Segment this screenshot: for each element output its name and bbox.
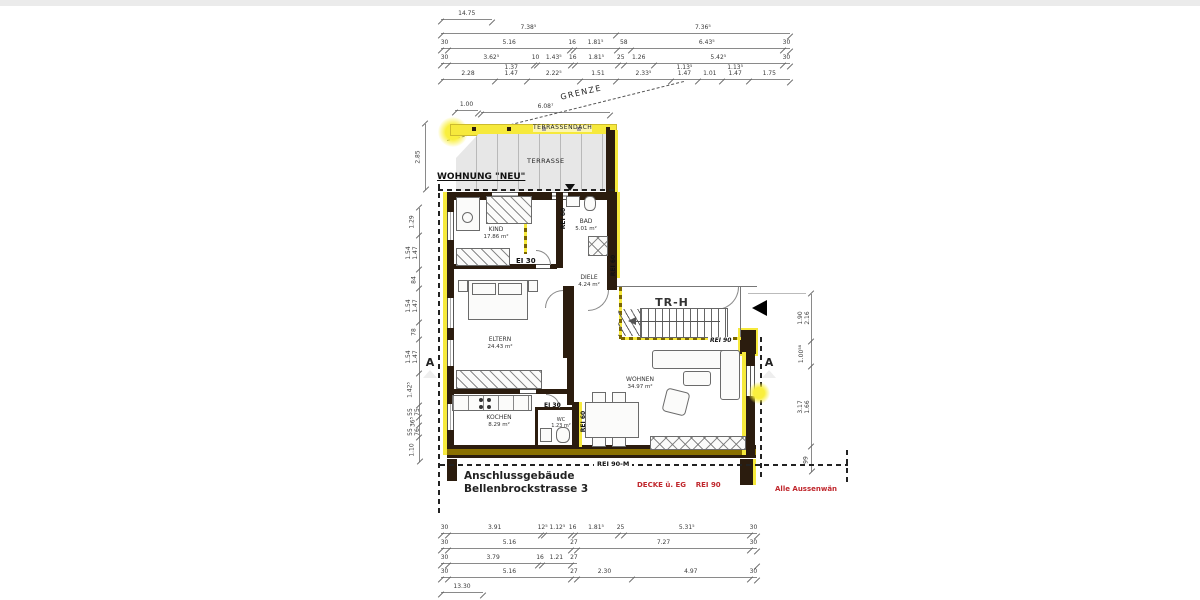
terrace-post <box>507 127 511 131</box>
dim-segment: 1.00⁵⁸ <box>796 342 812 367</box>
lower-wall-stub-left <box>447 459 457 481</box>
dim-segment: 1.10 <box>404 438 420 462</box>
window-eltern-2 <box>447 340 454 366</box>
dim-segment: 1.81⁵ <box>575 52 618 64</box>
kitchen-counter <box>452 395 532 411</box>
window-kind <box>447 212 454 240</box>
grenze-label: GRENZE <box>560 83 603 101</box>
section-marker-left: A <box>423 356 437 378</box>
dim-segment: 5.16 <box>448 537 571 549</box>
bottom-dim-chain-2: 305.16277.2730 <box>441 537 757 549</box>
dim-value: 3.79 <box>486 555 499 562</box>
dim-segment: 5.42⁵ <box>654 52 783 64</box>
rei90-label: REI 90 <box>708 337 733 344</box>
stairs-walkline <box>632 321 720 322</box>
dim-segment: 78 <box>404 323 420 340</box>
kind-wardrobe <box>456 248 510 266</box>
dim-value: 78 <box>412 328 419 336</box>
dim-segment: 55 75 <box>404 406 420 418</box>
dim-value: 13.30 <box>453 584 470 591</box>
left-dim-terrace-height: 2.85 <box>410 124 426 190</box>
dim-segment: 30 <box>441 566 448 578</box>
dim-segment: 84 <box>404 270 420 289</box>
dim-segment: 1.54 1.47 <box>404 236 420 270</box>
lower-wall-stub-right <box>740 459 753 485</box>
eltern-nightstand-2 <box>528 280 538 292</box>
dim-value: 1.81⁵ <box>588 55 604 62</box>
sideboard <box>650 436 746 450</box>
section-letter: A <box>765 356 774 369</box>
room-area: 8.29 m² <box>486 422 511 429</box>
dim-segment: 5.31⁵ <box>624 522 750 534</box>
terrace-right-wall <box>606 130 615 192</box>
dim-value: 30 <box>750 569 758 576</box>
dim-value: 3.62⁵ <box>483 55 499 62</box>
dim-value: 5.16 <box>503 569 516 576</box>
eltern-kochen-wall <box>451 389 567 394</box>
floorplan-canvas: 14.75 7.38⁵7.36⁵ 305.16161.81⁵586.43⁵30 … <box>0 0 1200 600</box>
room-area: 4.24 m² <box>578 282 600 289</box>
dim-segment: 1.13⁵ 1.47 <box>722 67 749 80</box>
dining-table <box>585 402 639 438</box>
trh-door-arc <box>716 287 739 310</box>
dim-segment: 1.75 <box>749 67 790 80</box>
dim-segment: 1.29 <box>404 208 420 236</box>
dim-value: 1.21 <box>550 555 563 562</box>
dim-segment: 30 <box>441 522 448 534</box>
section-line <box>748 293 806 294</box>
section-marker-right: A <box>762 356 776 378</box>
dim-value: 1.54 1.47 <box>406 247 419 260</box>
dim-segment: 1.12⁵ <box>544 522 571 534</box>
coffee-table <box>683 371 711 386</box>
dim-segment: 6.43⁵ <box>631 37 783 49</box>
dining-chair-4 <box>612 437 626 447</box>
room-name: WOHNEN <box>626 376 654 384</box>
rei60-label-bad-left: REI 60 <box>560 208 567 229</box>
dim-segment: 4.97 <box>632 566 750 578</box>
top-dim-chain-2: 7.38⁵7.36⁵ <box>441 22 790 34</box>
section-arrow <box>752 300 767 316</box>
window-eltern-1 <box>447 298 454 328</box>
bad-washbasin <box>566 196 580 207</box>
dim-segment: 30 <box>441 552 448 564</box>
dim-value: 2.85 <box>415 150 422 163</box>
dim-segment: 5.16 <box>448 37 570 49</box>
section-letter: A <box>426 356 435 369</box>
kind-bed <box>486 196 532 224</box>
room-name: KIND <box>483 226 508 234</box>
dim-value: 30 <box>783 40 791 47</box>
dim-segment: 3.17 1.66 <box>796 367 812 447</box>
dim-segment: 2.30 <box>577 566 632 578</box>
spine-wall-lower <box>567 356 574 405</box>
dim-segment: 7.27 <box>577 537 750 549</box>
rei90m-end-dash <box>846 450 848 484</box>
ei30-label-kind: EI 30 <box>516 257 536 265</box>
dim-value: 30 <box>750 525 758 532</box>
building-name: Anschlussgebäude Bellenbrockstrasse 3 <box>464 470 588 496</box>
dim-segment: 2.33⁵ <box>616 67 671 80</box>
dim-segment: 1.42⁵ <box>404 374 420 405</box>
dim-value: 5.16 <box>503 40 516 47</box>
dim-segment: 30 <box>441 537 448 549</box>
dim-value: 1.12⁵ <box>549 525 565 532</box>
room-label-wc: WC 1.23 m² <box>551 417 571 430</box>
rei90m-dashed-line <box>440 464 848 466</box>
dim-segment: 30 <box>750 522 757 534</box>
trh-right-line <box>740 286 741 338</box>
dim-value: 7.36⁵ <box>695 25 711 32</box>
dim-segment: 14.75 <box>441 8 492 20</box>
dim-segment: 1.90 2.16 <box>796 294 812 342</box>
room-name: KOCHEN <box>486 414 511 422</box>
dim-value: 1.00 <box>460 102 473 109</box>
decke-note: DECKE ü. EG REI 90 <box>637 481 721 489</box>
eltern-wardrobe <box>456 370 542 389</box>
dim-value: 1.54 1.47 <box>406 299 419 312</box>
dim-segment: 1.81⁵ <box>574 37 617 49</box>
dim-value: 1.13⁵ 1.47 <box>677 65 693 78</box>
dim-value: 3.17 1.66 <box>798 400 811 413</box>
eltern-pillow-1 <box>472 283 496 295</box>
room-name: TR-H <box>655 296 689 310</box>
dim-value: 1.00⁵⁸ <box>799 345 806 363</box>
highlight-glow-right <box>748 382 770 404</box>
dim-value: 1.13⁵ 1.47 <box>727 65 743 78</box>
kitchen-stove <box>479 398 483 402</box>
dim-value: 2.28 <box>461 71 474 78</box>
lower-wall-stub-highlight <box>753 459 756 485</box>
right-dim-chain: 1.90 2.161.00⁵⁸3.17 1.6699 <box>796 128 812 472</box>
dim-value: 1.01 <box>703 71 716 78</box>
room-area: 1.23 m² <box>551 423 571 429</box>
kind-chair <box>462 212 473 223</box>
dim-segment: 30 <box>441 52 448 64</box>
sofa-right <box>720 350 740 400</box>
top-dim-chain-1: 14.75 <box>441 8 790 20</box>
dim-value: 7.38⁵ <box>520 25 536 32</box>
stairs-direction-arrow <box>628 317 636 325</box>
dim-segment: 5.16 <box>448 566 571 578</box>
dim-segment: 7.38⁵ <box>441 22 616 34</box>
top-dim-chain-3: 305.16161.81⁵586.43⁵30 <box>441 37 790 49</box>
wc-left-wall <box>535 407 538 447</box>
section-triangle-icon <box>762 370 776 378</box>
dim-value: 84 <box>412 276 419 284</box>
dim-value: 1.75 <box>763 71 776 78</box>
section-triangle-icon <box>423 370 437 378</box>
left-boundary-dashed <box>438 184 440 516</box>
dim-value: 30 <box>750 540 758 547</box>
dim-value: 2.33⁵ <box>636 71 652 78</box>
dim-segment: 1.26 <box>624 52 654 64</box>
bad-toilet <box>584 196 596 211</box>
dim-segment: 1.51 <box>580 67 616 80</box>
dim-value: 14.75 <box>458 11 475 18</box>
dim-value: 1.90 2.16 <box>798 311 811 324</box>
dim-segment: 2.22⁵ <box>527 67 580 80</box>
dim-segment: 3.79 <box>448 552 538 564</box>
dining-chair-3 <box>592 437 606 447</box>
armchair <box>661 387 690 416</box>
dim-value: 1.26 <box>632 55 645 62</box>
terrace-bottom-dashed <box>438 189 614 191</box>
top-border-strip <box>0 0 1200 6</box>
dim-value: 1.29 <box>409 216 416 229</box>
room-label-kind: KIND 17.86 m² <box>483 226 508 240</box>
dim-segment: 1.00 <box>455 100 478 111</box>
room-label-diele: DIELE 4.24 m² <box>578 274 600 288</box>
dim-value: 99 <box>804 456 811 464</box>
dim-segment: 1.01 <box>698 67 722 80</box>
diele-eltern-wall <box>563 286 574 358</box>
ei30-label-wc: EI 30 <box>544 402 561 409</box>
dim-segment: 1.54 1.47 <box>404 289 420 323</box>
dim-value: 6.43⁵ <box>699 40 715 47</box>
dim-segment: 30 <box>441 37 448 49</box>
dim-segment: 3.62⁵ <box>448 52 534 64</box>
wohnen-door-arc <box>588 290 609 311</box>
eltern-door-arc <box>545 290 563 308</box>
bad-shower <box>588 236 608 256</box>
dim-segment <box>796 128 812 294</box>
room-label-bad: BAD 5.01 m² <box>575 218 597 232</box>
terrace-dim-offset: 1.00 <box>455 100 478 111</box>
dim-segment: 30 <box>750 537 757 549</box>
dim-value: 1.37 1.47 <box>505 65 518 78</box>
wc-sink <box>540 428 552 442</box>
dim-value: 6.08⁷ <box>538 104 554 111</box>
dim-segment: 99 <box>796 447 812 472</box>
top-dim-chain-5: 2.281.37 1.472.22⁵1.512.33⁵1.13⁵ 1.471.0… <box>441 67 790 80</box>
rei90m-label: REI 90-M <box>594 460 632 468</box>
terrasse-label: TERRASSE <box>527 158 565 165</box>
trh-corner-wall <box>740 330 756 354</box>
kochen-door-opening <box>520 389 536 394</box>
eltern-nightstand-1 <box>458 280 468 292</box>
dim-segment: 55 76 <box>404 426 420 438</box>
kind-bad-wall <box>556 192 563 268</box>
dim-value: 1.10 <box>409 443 416 456</box>
room-label-wohnen: WOHNEN 34.97 m² <box>626 376 654 390</box>
top-dim-chain-4: 303.62⁵101.43⁵161.81⁵251.265.42⁵30 <box>441 52 790 64</box>
room-area: 5.01 m² <box>575 226 597 233</box>
dim-segment <box>577 552 757 564</box>
dim-segment: 1.81⁵ <box>575 522 618 534</box>
dim-value: 1.43⁵ <box>546 55 562 62</box>
terrassendach-label: TERRASSENDACH <box>533 125 592 132</box>
aussenwand-note: Alle Aussenwän <box>775 485 837 493</box>
dim-segment: 58 <box>617 37 631 49</box>
terrace-right-wall-highlight <box>615 130 618 192</box>
dim-segment: 30 <box>783 37 790 49</box>
dim-segment: 30 <box>750 566 757 578</box>
terrace-post <box>472 127 476 131</box>
dim-segment: 1.13⁵ 1.47 <box>671 67 698 80</box>
building-line1: Anschlussgebäude <box>464 470 588 483</box>
dim-segment: 1.21 <box>542 552 571 564</box>
room-area: 34.97 m² <box>626 384 654 391</box>
dim-segment: 2.28 <box>441 67 495 80</box>
bottom-dim-chain-4: 305.16272.304.9730 <box>441 566 757 578</box>
room-area: 24.43 m² <box>487 344 512 351</box>
dim-value: 1.51 <box>591 71 604 78</box>
dim-value: 2.22⁵ <box>546 71 562 78</box>
kind-door-arc <box>536 250 551 265</box>
room-label-kochen: KOCHEN 8.29 m² <box>486 414 511 428</box>
dim-segment: 2.85 <box>410 124 426 190</box>
dim-value: 5.31⁵ <box>679 525 695 532</box>
room-label-trh: TR-H <box>655 296 689 310</box>
room-name: ELTERN <box>487 336 512 344</box>
dim-segment: 1.54 1.47 <box>404 340 420 374</box>
eltern-pillow-2 <box>498 283 522 295</box>
dim-value: 1.54 1.47 <box>406 350 419 363</box>
room-name: DIELE <box>578 274 600 282</box>
dim-value: 30 <box>783 55 791 62</box>
dim-value: 3.91 <box>488 525 501 532</box>
bad-right-wall-highlight <box>617 192 620 278</box>
wohnung-neu-title: WOHNUNG "NEU" <box>437 172 525 182</box>
dim-value: 5.42⁵ <box>710 55 726 62</box>
dim-segment: 3.91 <box>448 522 541 534</box>
rei60-label-bad-right: REI 60 <box>610 255 617 276</box>
dim-segment: 1.37 1.47 <box>495 67 527 80</box>
room-area: 17.86 m² <box>483 234 508 241</box>
bottom-dim-chain-5: 13.30 <box>441 581 757 593</box>
bottom-dim-chain-3: 303.79161.2127 <box>441 552 757 564</box>
dim-segment: 13.30 <box>441 581 483 593</box>
dim-value: 1.81⁵ <box>588 525 604 532</box>
dim-segment: 30 <box>783 52 790 64</box>
stairs <box>640 308 728 338</box>
dim-value: 1.81⁵ <box>588 40 604 47</box>
dim-segment: 1.43⁵ <box>537 52 571 64</box>
dim-value: 7.27 <box>657 540 670 547</box>
dim-value: 58 <box>620 40 628 47</box>
room-name: BAD <box>575 218 597 226</box>
bottom-dim-chain-1: 303.9112⁵1.12⁵161.81⁵255.31⁵30 <box>441 522 757 534</box>
dim-segment: 7.36⁵ <box>616 22 790 34</box>
room-label-eltern: ELTERN 24.43 m² <box>487 336 512 350</box>
building-line2: Bellenbrockstrasse 3 <box>464 483 588 496</box>
dim-value: 1.42⁵ <box>408 382 415 398</box>
dim-value: 5.16 <box>503 540 516 547</box>
dim-value: 4.97 <box>684 569 697 576</box>
dim-value: 2.30 <box>598 569 611 576</box>
left-dim-chain: 1.291.54 1.47841.54 1.47781.54 1.471.42⁵… <box>404 208 420 462</box>
